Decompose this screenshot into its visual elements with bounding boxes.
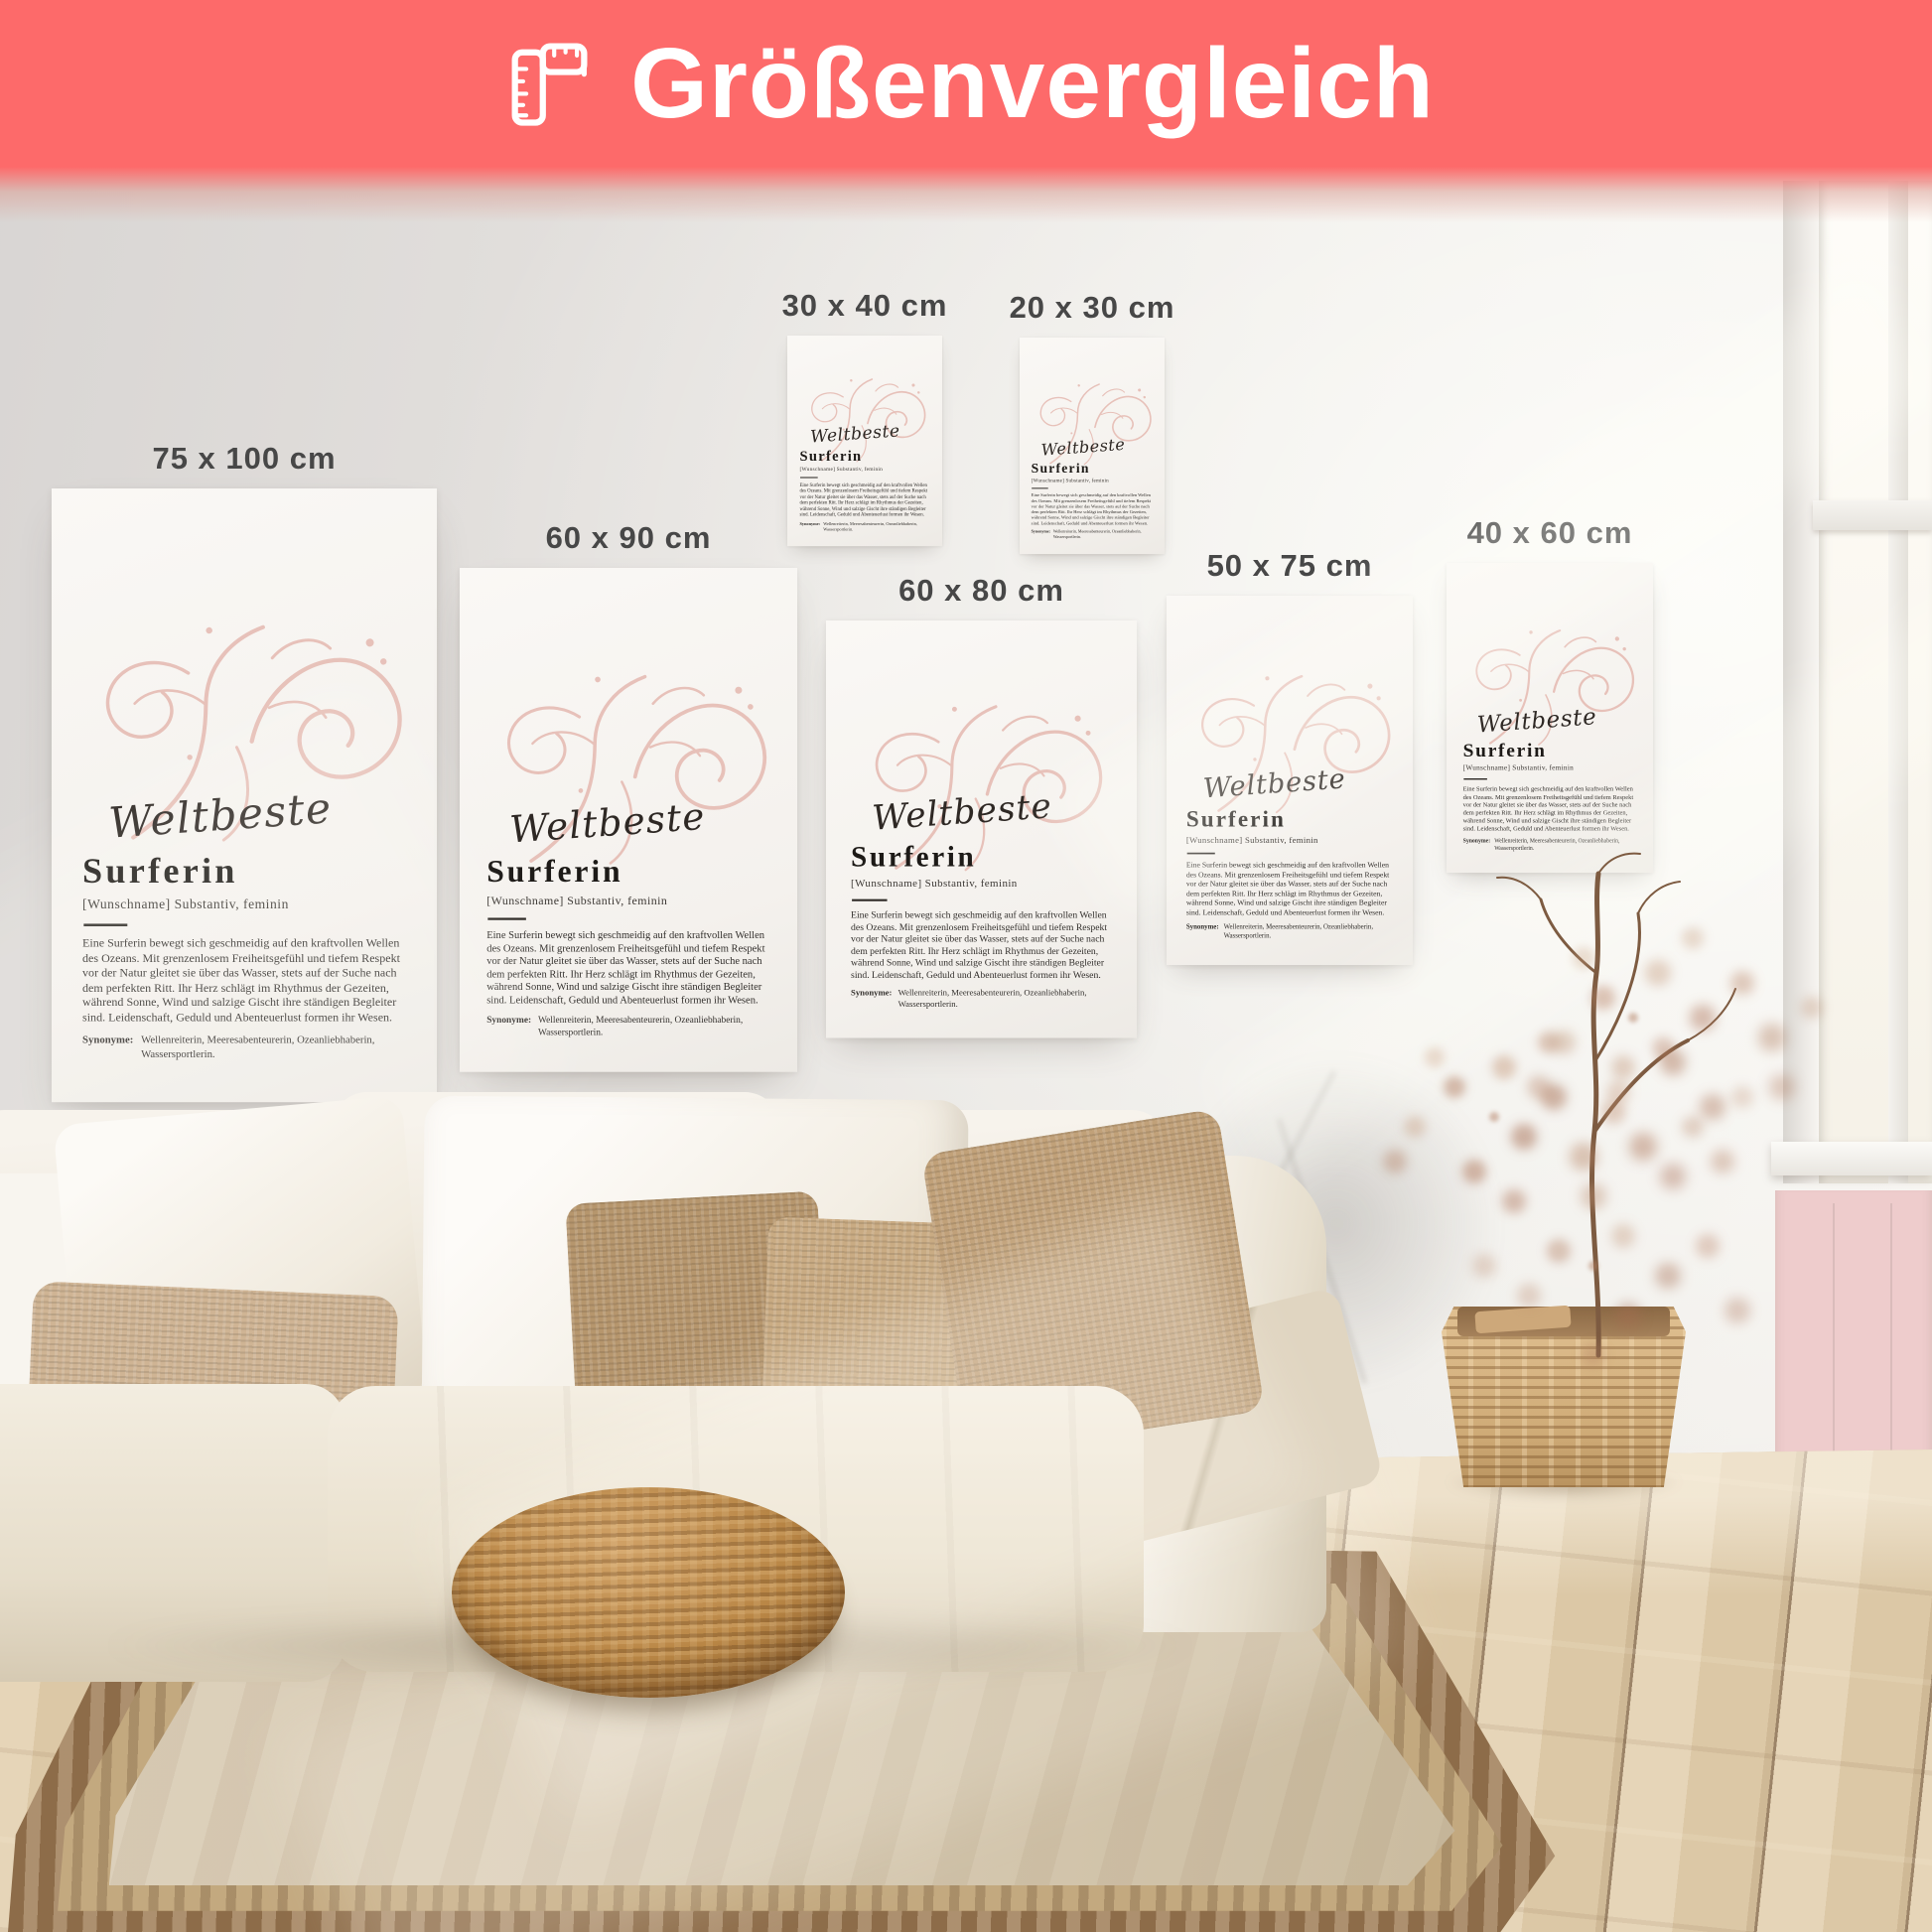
poster-75x100: 75 x 100 cm Weltbeste Surferin [Wunschna… [52,488,437,1102]
window-frame-jamb [1783,181,1819,1183]
poster-title: Surferin [82,852,421,893]
poster-definition: Eine Surferin bewegt sich geschmeidig au… [1186,862,1400,918]
synonyms-label: Synonyme: [799,521,820,532]
poster-subtitle: [Wunschname] Substantiv, feminin [486,896,783,907]
synonyms-text: Wellenreiterin, Meeresabenteurerin, Ozea… [1224,923,1387,941]
poster-definition: Eine Surferin bewegt sich geschmeidig au… [799,483,933,518]
size-label: 60 x 80 cm [898,573,1064,609]
size-label: 40 x 60 cm [1467,515,1633,551]
window-sill [1771,1142,1932,1175]
header-banner: Größenvergleich [0,0,1932,167]
dried-flower-cluster [1489,1112,1499,1122]
synonyms-label: Synonyme: [1186,923,1219,941]
poster-subtitle: [Wunschname] Substantiv, feminin [1463,764,1645,772]
size-comparison-scene: 75 x 100 cm Weltbeste Surferin [Wunschna… [0,0,1932,1932]
poster-subtitle: [Wunschname] Substantiv, feminin [851,879,1124,890]
divider [487,918,526,920]
banner-title: Größenvergleich [630,34,1435,133]
poster-subtitle: [Wunschname] Substantiv, feminin [799,467,935,473]
poster-60x80: 60 x 80 cm Weltbeste Surferin [Wunschnam… [826,621,1137,1037]
poster-definition: Eine Surferin bewegt sich geschmeidig au… [1463,786,1642,834]
synonyms-label: Synonyme: [851,989,892,1011]
size-label: 60 x 90 cm [546,520,712,556]
poster-subtitle: [Wunschname] Substantiv, feminin [1186,836,1403,845]
synonyms-text: Wellenreiterin, Meeresabenteurerin, Ozea… [823,521,925,532]
poster-definition: Eine Surferin bewegt sich geschmeidig au… [851,910,1120,982]
poster-title: Surferin [1032,461,1159,477]
synonyms-label: Synonyme: [1032,529,1050,539]
poster-50x75: 50 x 75 cm Weltbeste Surferin [Wunschnam… [1167,596,1413,965]
poster-40x60: 40 x 60 cm Weltbeste Surferin [Wunschnam… [1447,563,1653,873]
window-mullion-vertical [1888,181,1908,1183]
size-label: 75 x 100 cm [152,441,336,477]
synonyms-label: Synonyme: [486,1015,531,1038]
divider [1463,778,1487,779]
divider [1187,853,1215,855]
divider [852,899,887,901]
dried-flower-cluster [1588,1261,1598,1271]
poster-title: Surferin [851,841,1124,874]
ruler-icon [497,32,601,135]
poster-title: Surferin [486,855,783,891]
poster-subtitle: [Wunschname] Substantiv, feminin [82,898,421,912]
size-label: 20 x 30 cm [1010,290,1175,326]
synonyms-text: Wellenreiterin, Meeresabenteurerin, Ozea… [898,989,1104,1011]
window-mullion-horizontal [1813,500,1932,530]
wicker-pouf [452,1487,845,1698]
poster-title: Surferin [1463,740,1645,761]
synonyms-text: Wellenreiterin, Meeresabenteurerin, Ozea… [1053,529,1149,539]
size-label: 30 x 40 cm [782,288,948,324]
poster-definition: Eine Surferin bewegt sich geschmeidig au… [1032,493,1158,527]
size-label: 50 x 75 cm [1207,548,1373,584]
poster-definition: Eine Surferin bewegt sich geschmeidig au… [82,938,416,1027]
poster-title: Surferin [1186,807,1403,833]
divider [800,477,818,478]
divider [1032,487,1048,488]
window-pane [1819,181,1932,1183]
synonyms-text: Wellenreiterin, Meeresabenteurerin, Ozea… [538,1015,760,1038]
synonyms-label: Synonyme: [82,1035,133,1062]
poster-30x40: 30 x 40 cm Weltbeste Surferin [Wunschnam… [787,336,942,546]
poster-definition: Eine Surferin bewegt sich geschmeidig au… [486,930,779,1008]
poster-subtitle: [Wunschname] Substantiv, feminin [1032,479,1159,483]
synonyms-text: Wellenreiterin, Meeresabenteurerin, Ozea… [141,1035,395,1062]
poster-20x30: 20 x 30 cm Weltbeste Surferin [Wunschnam… [1020,338,1165,554]
dried-plant-branches [1449,844,1747,1360]
poster-60x90: 60 x 90 cm Weltbeste Surferin [Wunschnam… [460,568,797,1072]
poster-title: Surferin [799,448,935,465]
dried-flower-cluster [1628,1013,1638,1023]
window [1783,181,1932,1183]
divider [83,924,127,927]
